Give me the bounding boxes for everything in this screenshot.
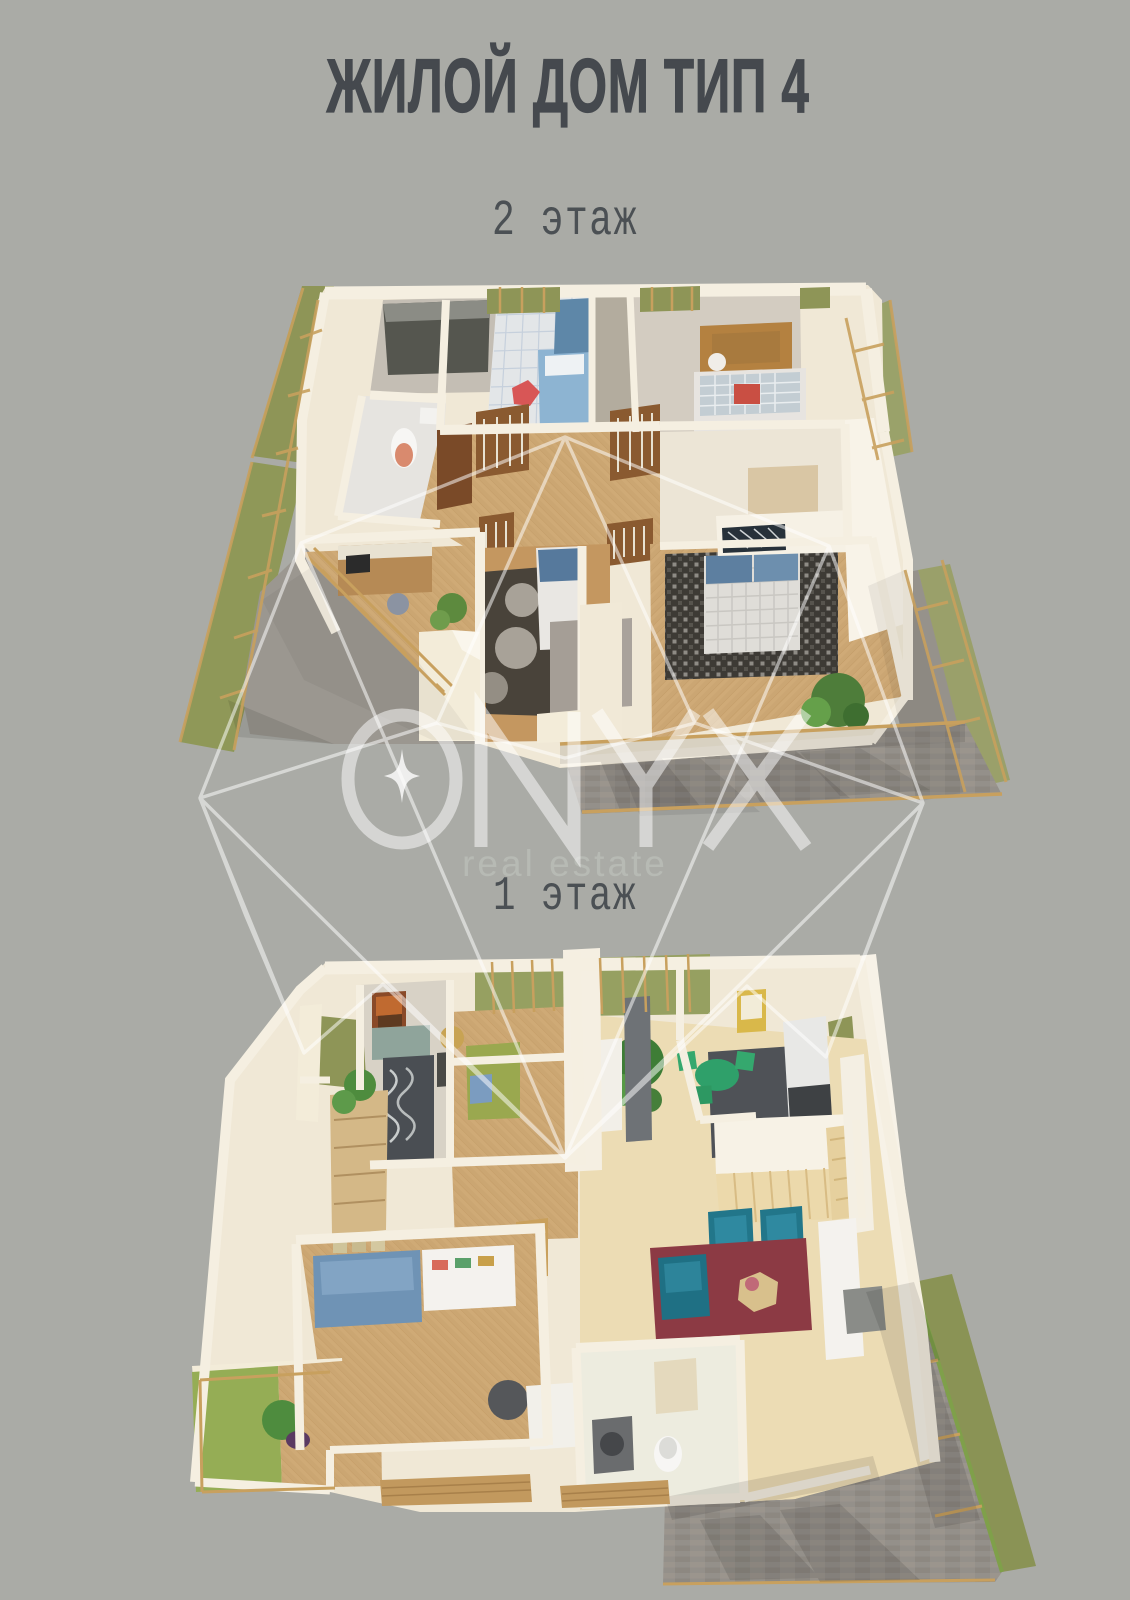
svg-text:2 этаж: 2 этаж	[492, 193, 638, 249]
svg-text:ЖИЛОЙ ДОМ ТИП 4: ЖИЛОЙ ДОМ ТИП 4	[326, 42, 810, 129]
svg-text:1 этаж: 1 этаж	[493, 869, 637, 924]
